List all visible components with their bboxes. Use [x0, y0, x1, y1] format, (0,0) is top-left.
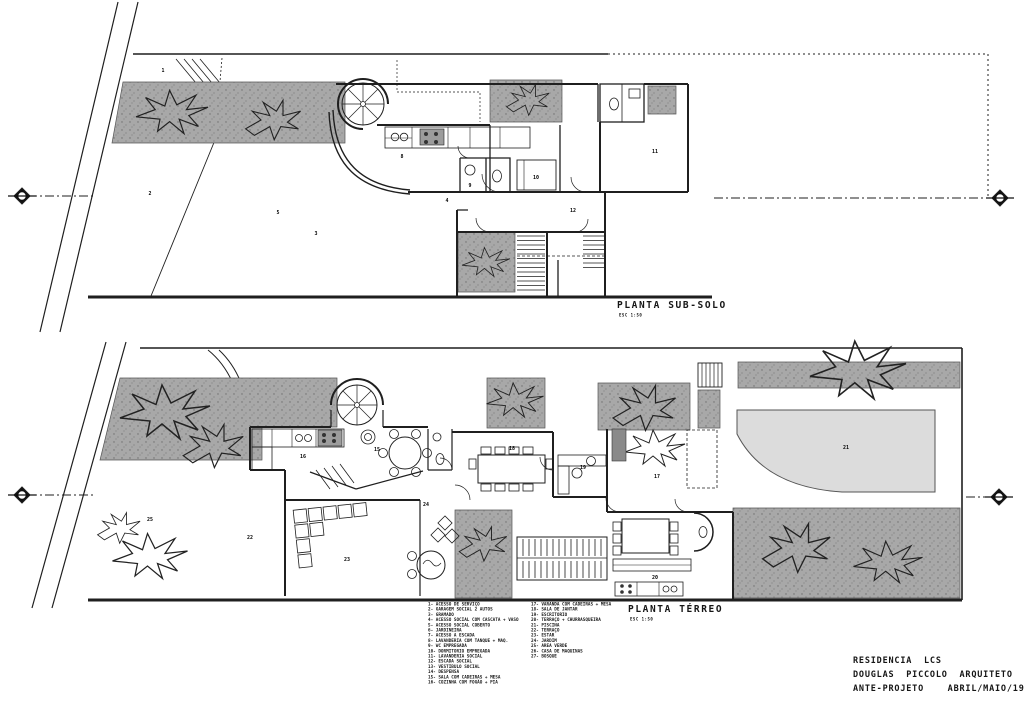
- tree-icon: [98, 513, 141, 544]
- plan-terreo: [32, 341, 962, 608]
- drawing-sheet: PLANTA SUB-SOLO ESC 1:50 PLANTA TÉRREO E…: [0, 0, 1024, 709]
- titleblock-phase: ANTE-PROJETO ABRIL/MAIO/1980: [853, 684, 1024, 694]
- legend-entry: 27- BOSQUE: [531, 654, 646, 659]
- subsolo-plan-title: PLANTA SUB-SOLO: [617, 300, 727, 311]
- section-marker-icon: [8, 188, 36, 204]
- tree-icon: [625, 430, 685, 466]
- spiral-stair-terreo: [331, 379, 383, 425]
- titleblock-project: RESIDENCIA LCS: [853, 656, 942, 666]
- section-marker-icon: [8, 487, 36, 503]
- section-marker-icon: [986, 190, 1014, 206]
- legend-col-left: 1- ACESSO DE SERVIÇO2- GARAGEM SOCIAL 2 …: [428, 602, 543, 685]
- legend-col-right: 17- VARANDA COM CADEIRAS + MESA18- SALA …: [531, 602, 646, 659]
- plan-subsolo: [40, 2, 988, 332]
- stairs-subsolo: [517, 236, 605, 290]
- subsolo-plan-scale: ESC 1:50: [619, 313, 642, 318]
- tree-icon: [113, 534, 188, 579]
- titleblock-architect: DOUGLAS PICCOLO ARQUITETO: [853, 670, 1013, 680]
- legend-entry: 16- COZINHA COM FOGÃO + PIA: [428, 680, 543, 685]
- spiral-stair-subsolo: [338, 79, 388, 129]
- stairs-terreo: [517, 537, 607, 580]
- section-marker-icon: [985, 489, 1013, 505]
- swimming-pool: [737, 410, 935, 492]
